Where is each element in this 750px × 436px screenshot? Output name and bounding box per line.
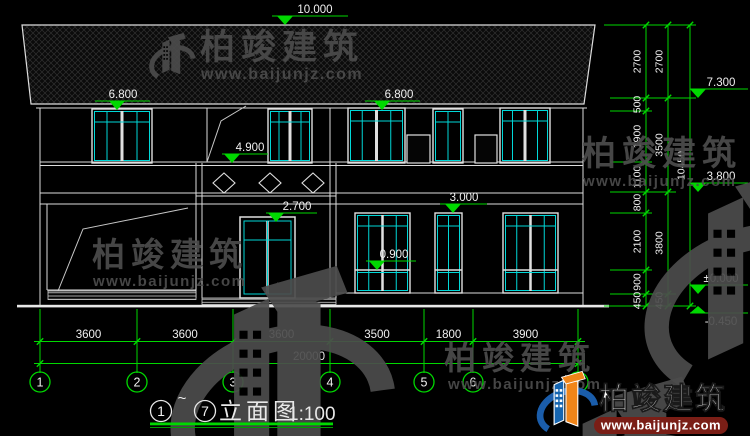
axis-number: 1 (37, 376, 44, 390)
railing-panel (475, 135, 497, 163)
diamond-ornament (302, 173, 324, 193)
diamond-ornament (259, 173, 281, 193)
axis-number: 4 (327, 376, 334, 390)
dim-value-floor: 2700 (632, 50, 644, 74)
elevation-value: 0.900 (380, 249, 409, 261)
dim-value-floor: 500 (632, 96, 644, 114)
title-axis-to: 7 (201, 403, 209, 419)
title-axis-from: 1 (157, 403, 165, 419)
watermark-logo-color: 柏竣建筑 www.baijunjz.com (540, 371, 728, 434)
window-double (348, 108, 405, 163)
watermark-brand: 柏竣建筑 (92, 236, 248, 273)
dim-graphic (277, 16, 293, 25)
axis-number: 5 (421, 376, 428, 390)
band-diamonds (213, 173, 324, 193)
elevation-marker: 10.000 (272, 4, 348, 25)
window-double (92, 109, 152, 163)
elevation-marker: 0.900 (366, 249, 416, 270)
dim-value-bottom: 3600 (172, 329, 198, 341)
dim-value-bottom: 3600 (76, 329, 102, 341)
title-tilde: ~ (178, 390, 187, 407)
elevation-marker: 3.000 (440, 192, 487, 213)
dim-value-group: 2700 (654, 50, 666, 74)
title-underline (150, 423, 333, 426)
baijun-logo-icon (657, 165, 750, 376)
dim-value-floor: 900 (632, 273, 644, 291)
elevation-value: 10.000 (297, 4, 332, 16)
dim-graphic (690, 89, 706, 98)
logo-brand: 柏竣建筑 (599, 382, 727, 416)
elevation-value: 4.900 (236, 142, 265, 154)
elevation-marker: 7.300 (690, 77, 748, 98)
elevation-value: 2.700 (283, 201, 312, 213)
watermark-mid-right: 柏竣建筑 www.baijunjz.com (582, 134, 750, 376)
window-tall (503, 213, 558, 293)
dim-value-floor: 450 (632, 292, 644, 310)
elevation-value: 3.000 (450, 192, 479, 204)
title-scale: 1:100 (288, 404, 336, 425)
railing-panel (407, 135, 430, 163)
watermark-brand: 柏竣建筑 (200, 27, 364, 67)
dim-graphic (445, 204, 461, 213)
dim-value-group: 3800 (654, 231, 666, 255)
diamond-ornament (213, 173, 235, 193)
window-double (500, 108, 550, 163)
watermark-brand: 柏竣建筑 (582, 134, 742, 173)
dim-value-bottom: 3500 (364, 329, 390, 341)
dim-graphic (690, 306, 706, 313)
dim-value-floor: 2100 (632, 230, 644, 254)
watermark-url: www.baijunjz.com (200, 66, 363, 83)
watermark-url: www.baijunjz.com (582, 173, 736, 190)
logo-url: www.baijunjz.com (600, 418, 721, 433)
elevation-value: 6.800 (385, 89, 414, 101)
watermark-brand: 柏竣建筑 (444, 340, 596, 376)
step-strip-left (48, 291, 196, 300)
window-tall (435, 213, 462, 293)
elevation-value: 7.300 (707, 77, 736, 89)
elevation-value: 6.800 (109, 89, 138, 101)
elevation-marker: 4.900 (222, 142, 268, 163)
elevation-drawing-canvas: 3600360036003500180039002000012345672700… (0, 0, 750, 436)
dim-graphic (690, 285, 706, 294)
watermark-url: www.baijunjz.com (92, 273, 246, 290)
window-single (433, 109, 463, 163)
dim-value-floor: 800 (632, 194, 644, 212)
axis-number: 2 (134, 376, 141, 390)
window-double (268, 109, 312, 163)
